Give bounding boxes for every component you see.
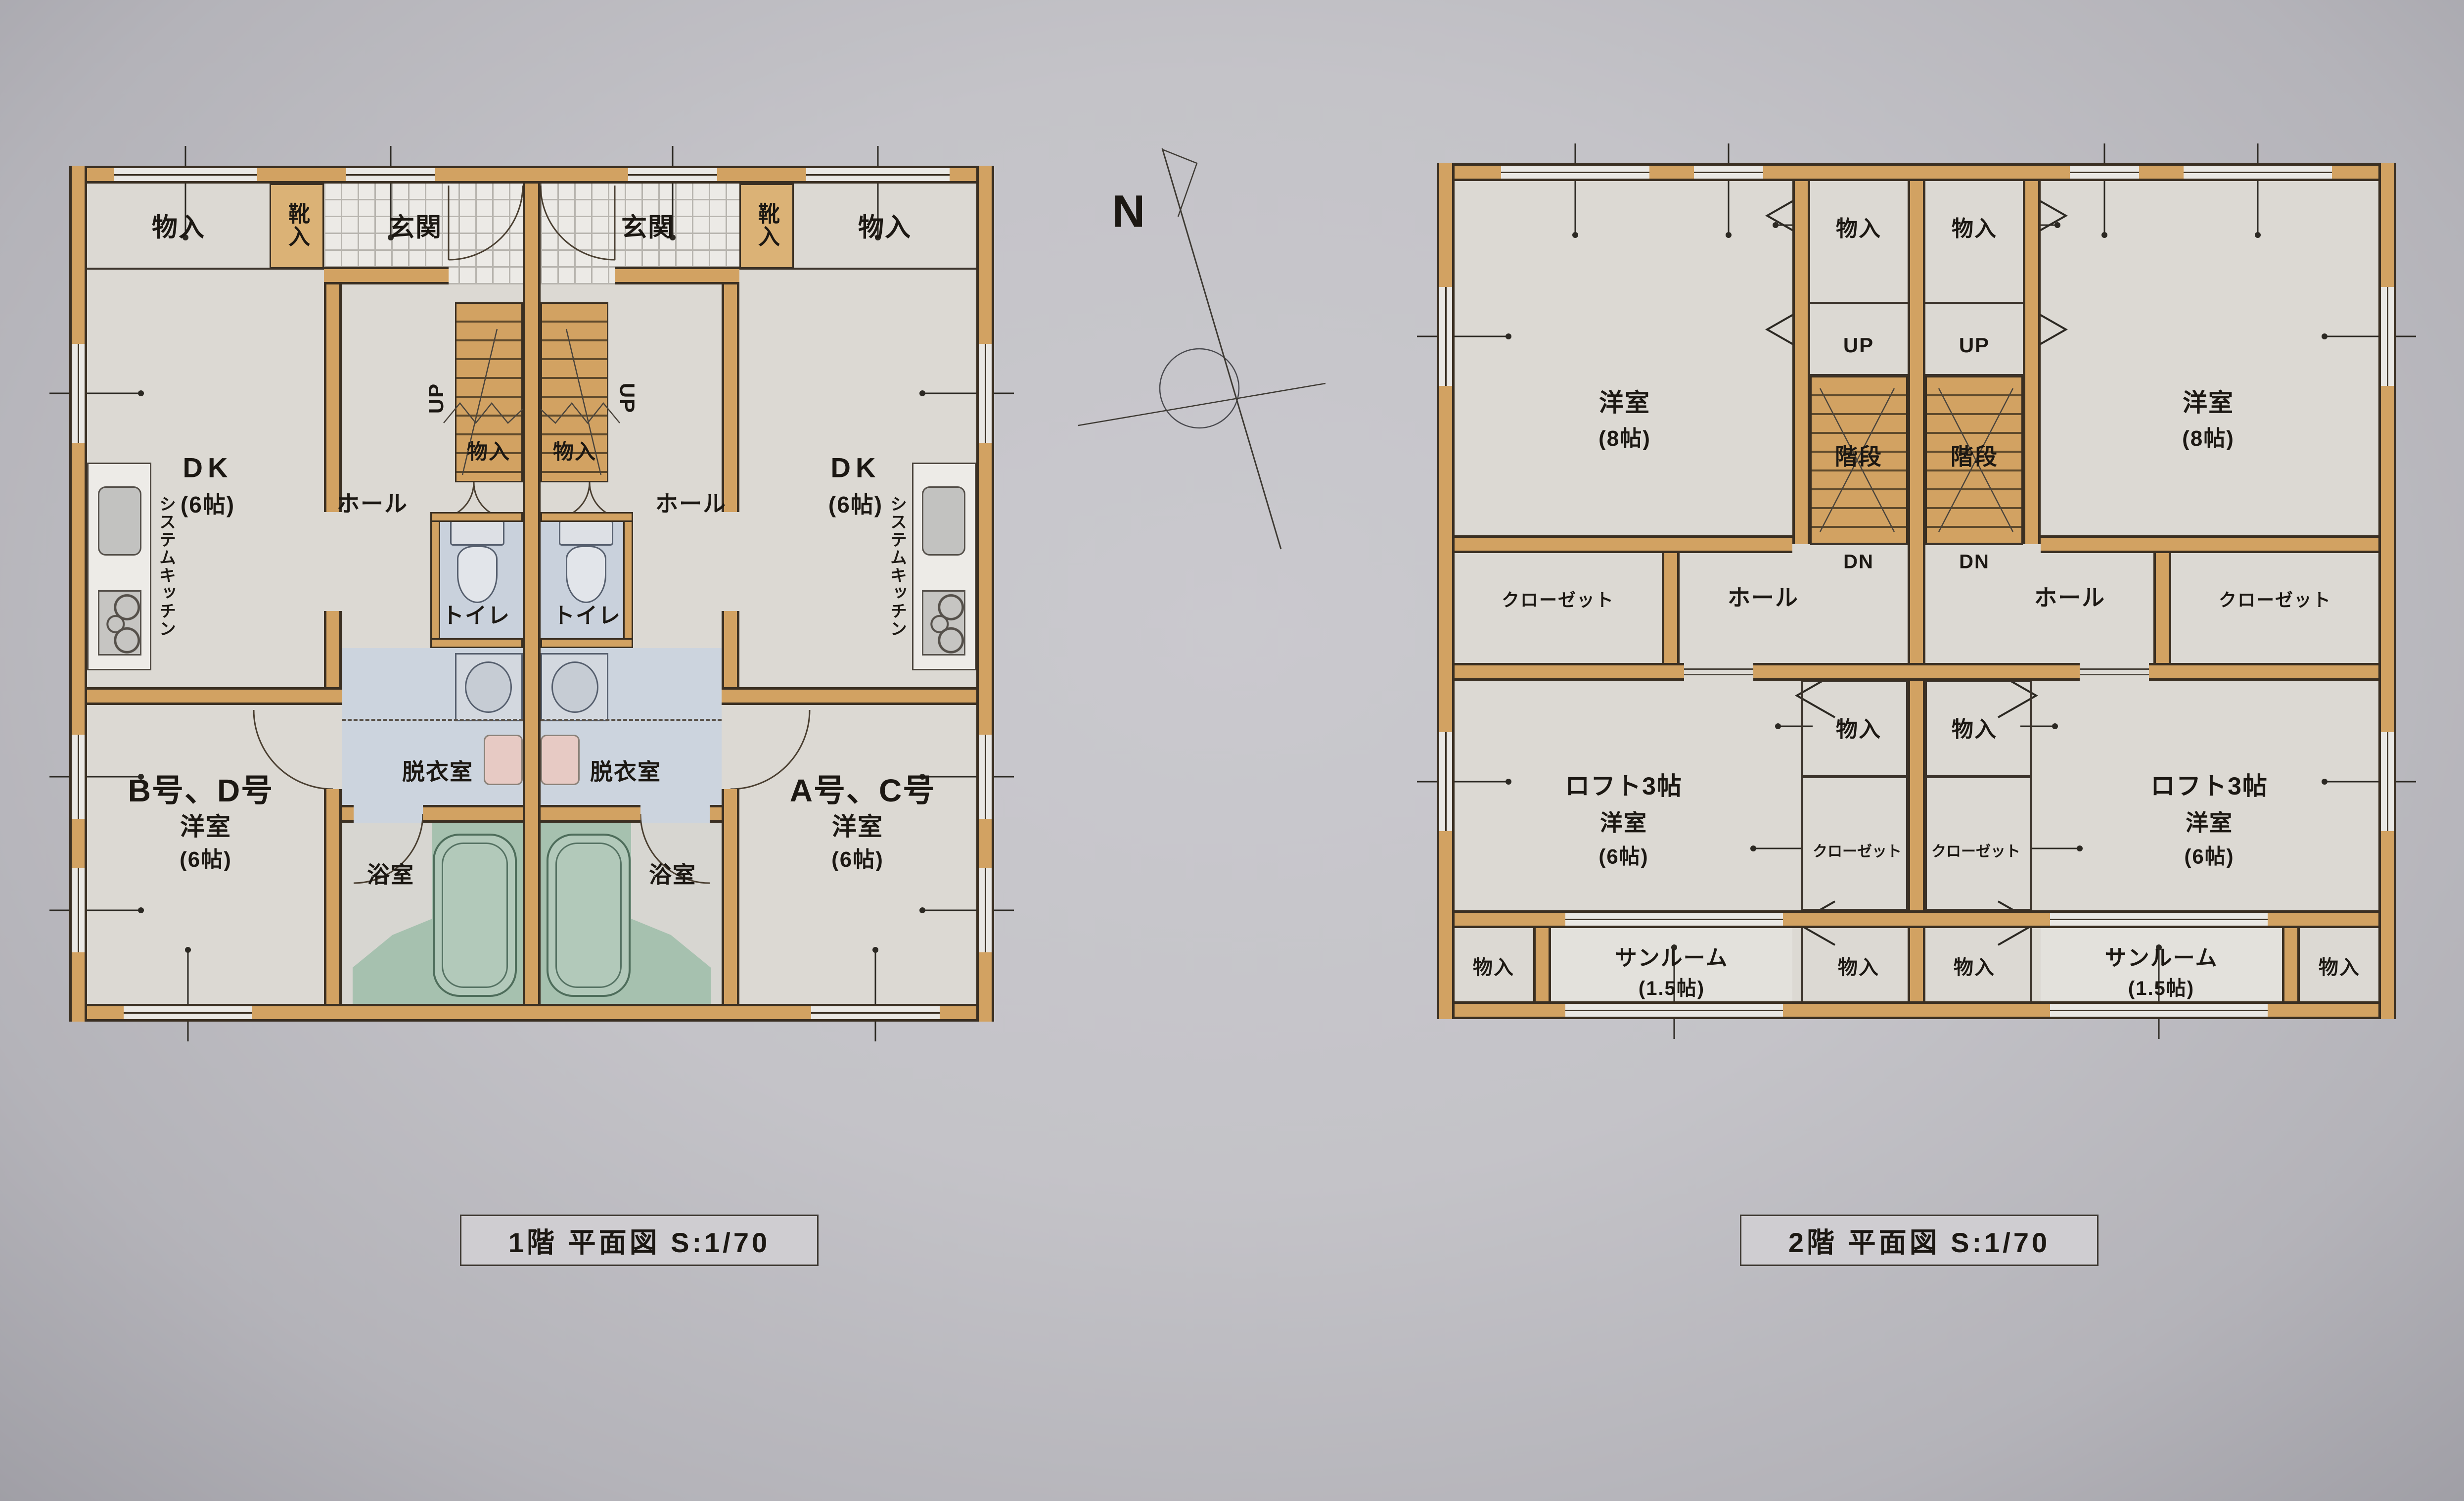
room-label-western: 洋室 [2183, 383, 2234, 419]
window [2184, 163, 2332, 181]
window [1501, 163, 1649, 181]
toilet-wall [430, 512, 440, 648]
window [1565, 1001, 1783, 1019]
floor2-caption: 2階 平面図 S:1/70 [1740, 1215, 2099, 1266]
wall [541, 805, 640, 823]
wall [2282, 928, 2300, 1001]
window [124, 1004, 252, 1022]
room-label-hall: ホール [655, 486, 727, 518]
room-label-western: 洋室 [1599, 383, 1650, 419]
room-label-storage: 物入 [152, 207, 205, 244]
tick-dot [1773, 222, 1779, 228]
party-wall [1908, 181, 1925, 1001]
tick-dot [1726, 232, 1732, 238]
closet-line [1925, 302, 2023, 304]
room-size-label: (6帖) [1598, 840, 1648, 870]
window [69, 735, 87, 819]
room-label-hall: ホール [1728, 580, 1799, 612]
wall [615, 267, 739, 284]
wall [1455, 535, 1792, 553]
window [806, 166, 950, 184]
room-label-loft: ロフト3帖 [1565, 766, 1683, 802]
folding-door-line [342, 719, 523, 721]
wall [710, 805, 722, 823]
stair-down-label: DN [1959, 551, 1990, 573]
room-label-toilet: トイレ [442, 598, 510, 629]
room-label-storage: 物入 [1838, 951, 1879, 980]
floor1-plan: 物入 靴入 玄関 物入 靴入 玄関 UP UP 物入 物入 DK (6帖) DK… [69, 166, 994, 1022]
room-label-dk: DK [831, 452, 881, 484]
sliding-door [1684, 668, 1753, 675]
tick-dot [2101, 232, 2107, 238]
closet-line [2030, 928, 2032, 1001]
room-label-dressing: 脱衣室 [590, 754, 661, 787]
room-label-storage: 物入 [2319, 951, 2360, 980]
compass-circle [1160, 349, 1239, 428]
tick-dot [1572, 232, 1578, 238]
room-label-hall: ホール [337, 486, 408, 518]
understair-storage-label: 物入 [467, 435, 510, 466]
wall [1455, 663, 1684, 681]
room-label-storage: 物入 [1836, 711, 1881, 743]
room-label-closet: クローゼット [1813, 839, 1902, 861]
wall [722, 789, 739, 1004]
window [976, 868, 994, 952]
closet-line [1810, 302, 1908, 304]
toilet-wall [430, 512, 523, 522]
tick-dot [2255, 232, 2261, 238]
window [114, 166, 257, 184]
wall [1662, 553, 1680, 663]
room-label-storage: 物入 [1836, 211, 1881, 242]
unit-label-ac: A号、C号 [790, 765, 935, 811]
room-label-sunroom: サンルーム [2105, 940, 2218, 972]
room-label-closet: クローゼット [1502, 586, 1614, 611]
room-label-western: 洋室 [2186, 805, 2233, 838]
compass-needle [1162, 148, 1281, 549]
room-label-shoe-box: 靴入 [751, 202, 782, 248]
window [2378, 732, 2396, 831]
room-label-storage: 物入 [1473, 951, 1514, 980]
room-size-label: (6帖) [828, 487, 883, 519]
sliding-door [2080, 668, 2149, 675]
floor1-caption: 1階 平面図 S:1/70 [460, 1215, 819, 1266]
closet-line [1801, 928, 1803, 1001]
tick-dot [2077, 845, 2083, 851]
stair-edge-line [1925, 374, 2023, 376]
wall [2153, 553, 2171, 663]
tick-dot [2322, 779, 2327, 785]
stair-edge-line [1925, 543, 2023, 545]
closet-line [87, 268, 324, 270]
wall [722, 284, 739, 512]
window [346, 166, 435, 184]
room-label-hall: ホール [2034, 580, 2105, 612]
folding-door-line [541, 719, 722, 721]
window [976, 344, 994, 443]
stair-up-label: UP [1843, 333, 1874, 357]
room-size-label: (8帖) [1598, 421, 1651, 452]
room-label-stairs: 階段 [1951, 439, 1998, 471]
room-label-loft: ロフト3帖 [2150, 766, 2268, 802]
window [1694, 163, 1763, 181]
window [628, 166, 717, 184]
photo-background: 物入 靴入 玄関 物入 靴入 玄関 UP UP 物入 物入 DK (6帖) DK… [0, 0, 2464, 1501]
tick-dot [1506, 779, 1511, 785]
wall [722, 687, 976, 705]
room-size-label: (6帖) [2184, 840, 2234, 870]
tick-dot [2322, 333, 2327, 339]
room-size-label: (8帖) [2182, 421, 2235, 452]
sunroom-window [1565, 910, 1783, 928]
room-label-entrance: 玄関 [621, 207, 675, 244]
tick-dot [1775, 723, 1781, 729]
room-label-stairs: 階段 [1835, 439, 1882, 471]
room-label-western: 洋室 [1600, 805, 1647, 838]
room-label-storage: 物入 [1952, 711, 1997, 743]
room-label-toilet: トイレ [553, 598, 621, 629]
room-label-closet: クローゼット [2219, 586, 2331, 611]
wall [2041, 535, 2378, 553]
window [69, 868, 87, 952]
room-label-closet: クローゼット [1931, 839, 2020, 861]
stair-break-line [541, 403, 620, 423]
tick-dot [185, 947, 191, 953]
room-label-storage: 物入 [1952, 211, 1997, 242]
room-size-label: (6帖) [181, 487, 235, 519]
room-label-storage: 物入 [858, 207, 912, 244]
window [1437, 287, 1455, 386]
understair-storage-label: 物入 [553, 435, 596, 466]
wall [1792, 181, 1810, 544]
tick-dot [872, 947, 878, 953]
tick-dot [138, 907, 144, 913]
wall [324, 284, 342, 512]
system-kitchen-label: システムキッチン [885, 495, 910, 638]
party-wall [523, 184, 541, 1004]
tick-dot [2052, 723, 2058, 729]
window [69, 344, 87, 443]
tick-dot [1750, 845, 1756, 851]
wall [2023, 181, 2041, 544]
room-label-storage: 物入 [1954, 951, 1995, 980]
wall [342, 805, 354, 823]
room-size-label: (6帖) [180, 842, 232, 873]
stair-down-label: DN [1843, 551, 1874, 573]
wall [423, 805, 523, 823]
tick-dot [1506, 333, 1511, 339]
stair-up-label: UP [424, 383, 448, 414]
toilet-wall [541, 512, 633, 522]
wall [87, 687, 342, 705]
window [2070, 163, 2139, 181]
wall [324, 267, 449, 284]
window [2378, 287, 2396, 386]
stair-edge-line [1810, 374, 1908, 376]
room-label-sunroom: サンルーム [1615, 940, 1729, 972]
room-label-western: 洋室 [180, 807, 231, 843]
north-arrow [1053, 148, 1350, 569]
wall [1533, 928, 1551, 1001]
room-label-dressing: 脱衣室 [402, 754, 473, 787]
closet-line [739, 268, 976, 270]
window [1437, 732, 1455, 831]
stair-break-line [444, 403, 523, 423]
room-label-shoe-box: 靴入 [281, 202, 313, 248]
room-label-western: 洋室 [832, 807, 883, 843]
window [2050, 1001, 2268, 1019]
front-door-arc-left [449, 186, 523, 260]
wall [1753, 663, 2080, 681]
stair-up-label: UP [1959, 333, 1990, 357]
room-label-bath: 浴室 [367, 857, 414, 890]
stair-up-label: UP [615, 383, 639, 414]
toilet-wall [430, 638, 523, 648]
system-kitchen-label: システムキッチン [154, 495, 179, 638]
room-label-dk: DK [183, 452, 233, 484]
compass-cross-line [1078, 383, 1325, 425]
room-size-label: (6帖) [831, 842, 884, 873]
window [976, 735, 994, 819]
tick-dot [919, 390, 925, 396]
unit-label-bd: B号、D号 [128, 765, 274, 811]
stair-edge-line [1810, 543, 1908, 545]
floor2-plan: 洋室 (8帖) 洋室 (8帖) 物入 物入 UP UP 階段 階段 DN DN … [1437, 163, 2396, 1019]
toilet-wall [541, 638, 633, 648]
toilet-wall [623, 512, 633, 648]
room-label-entrance: 玄関 [389, 207, 442, 244]
room-size-label: (1.5帖) [1639, 972, 1705, 1001]
wall [324, 789, 342, 1004]
room-size-label: (1.5帖) [2128, 972, 2194, 1001]
tick-dot [919, 907, 925, 913]
room-label-bath: 浴室 [649, 857, 696, 890]
sunroom-window [2050, 910, 2268, 928]
window [811, 1004, 940, 1022]
wall [2149, 663, 2378, 681]
tick-dot [138, 390, 144, 396]
tick-dot [2054, 222, 2060, 228]
front-door-arc-right [541, 186, 615, 260]
